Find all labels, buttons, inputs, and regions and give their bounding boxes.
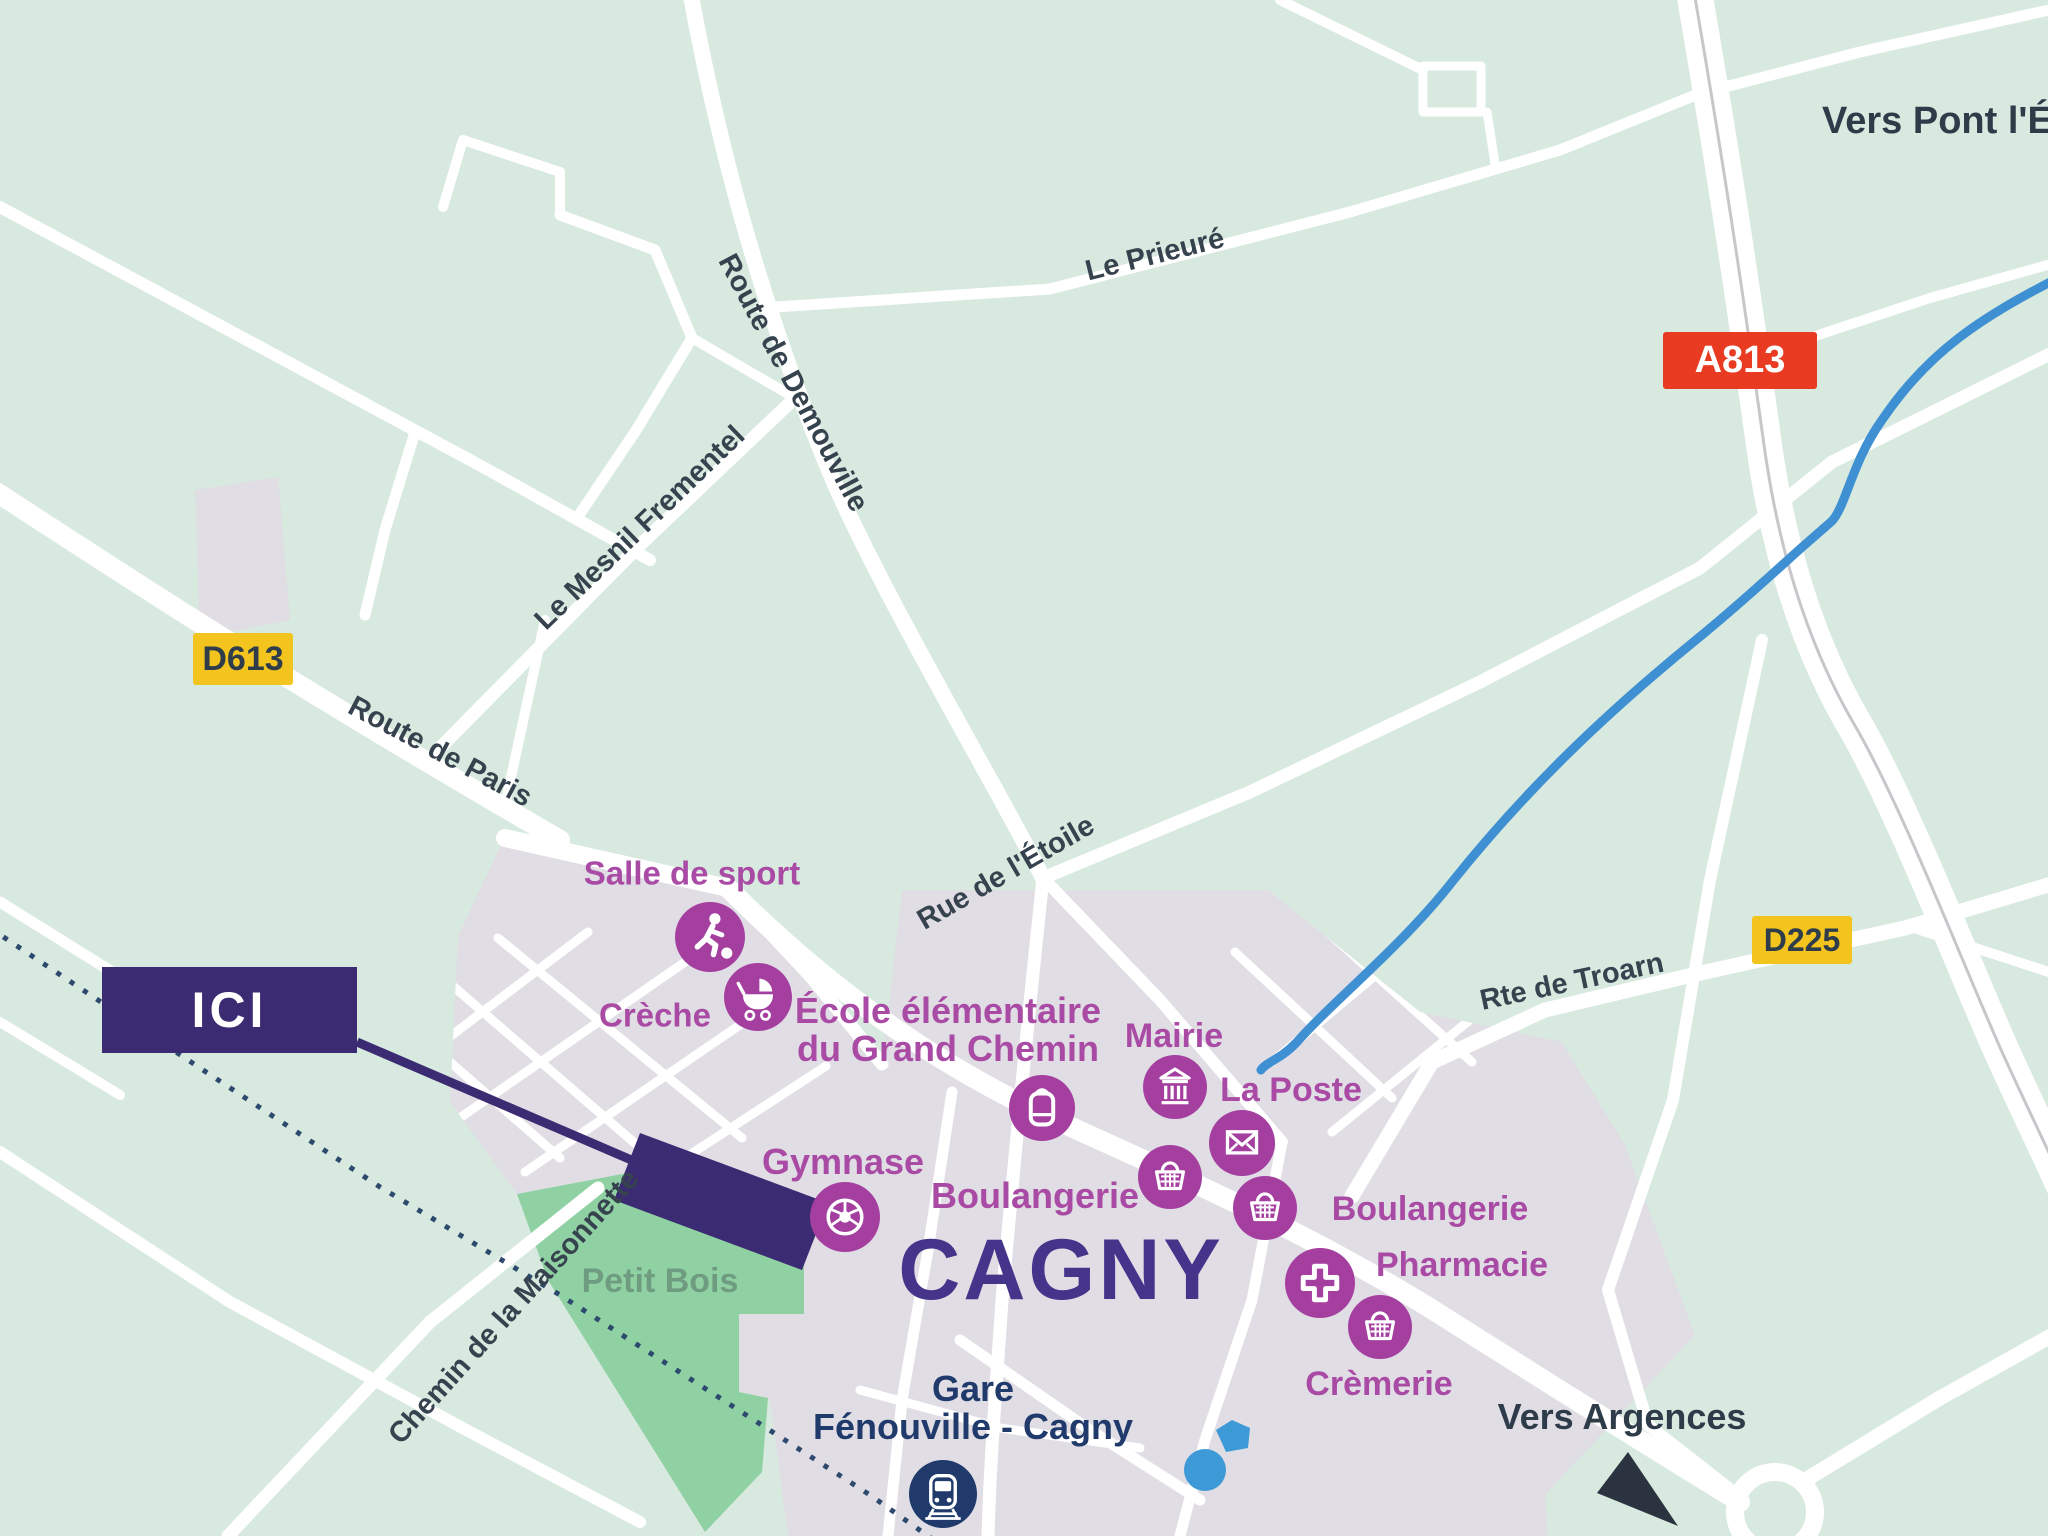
poi-label-creche: Crèche [599, 999, 711, 1034]
petit-bois-label: Petit Bois [582, 1264, 739, 1300]
poi-label-mairie: Mairie [1125, 1019, 1223, 1055]
town-title: CAGNY [898, 1225, 1224, 1315]
poi-label-boulangerie-1: Boulangerie [931, 1177, 1139, 1215]
direction-pont-leveque-label: Vers Pont l'Évê [1822, 100, 2048, 143]
map-canvas: Route de Paris Route de Demouville Le Me… [0, 0, 2048, 1536]
town-hall-icon [1143, 1055, 1207, 1119]
envelope-icon [1209, 1110, 1275, 1176]
stroller-icon [724, 963, 792, 1031]
basket-icon [1233, 1176, 1297, 1240]
direction-argences-label: Vers Argences [1498, 1398, 1747, 1436]
gray-parcel [195, 477, 290, 638]
poi-label-boulangerie-2: Boulangerie [1332, 1192, 1528, 1228]
poi-label-ecole-line2: du Grand Chemin [795, 1030, 1101, 1068]
basket-icon [1348, 1295, 1412, 1359]
backpack-icon [1009, 1075, 1075, 1141]
station-label-line1: Gare [813, 1370, 1133, 1408]
poi-label-la-poste: La Poste [1220, 1073, 1362, 1109]
poi-label-pharmacie: Pharmacie [1376, 1248, 1548, 1284]
train-icon [909, 1460, 977, 1528]
station-label-line2: Fénouville - Cagny [813, 1408, 1133, 1446]
here-marker: ICI [102, 967, 357, 1053]
a813-badge: A813 [1663, 332, 1817, 389]
soccer-ball-icon [810, 1182, 880, 1252]
poi-label-gymnase: Gymnase [762, 1143, 924, 1181]
poi-label-cremerie: Crèmerie [1305, 1367, 1452, 1403]
d613-badge: D613 [193, 633, 293, 685]
runner-icon [675, 902, 745, 972]
poi-label-ecole: École élémentaire du Grand Chemin [795, 992, 1101, 1068]
poi-label-salle-de-sport: Salle de sport [584, 857, 800, 892]
station-label: Gare Fénouville - Cagny [813, 1370, 1133, 1446]
medical-cross-icon [1285, 1248, 1355, 1318]
d225-badge: D225 [1752, 916, 1852, 964]
pond [1184, 1449, 1226, 1491]
poi-label-ecole-line1: École élémentaire [795, 992, 1101, 1030]
basket-icon [1138, 1145, 1202, 1209]
